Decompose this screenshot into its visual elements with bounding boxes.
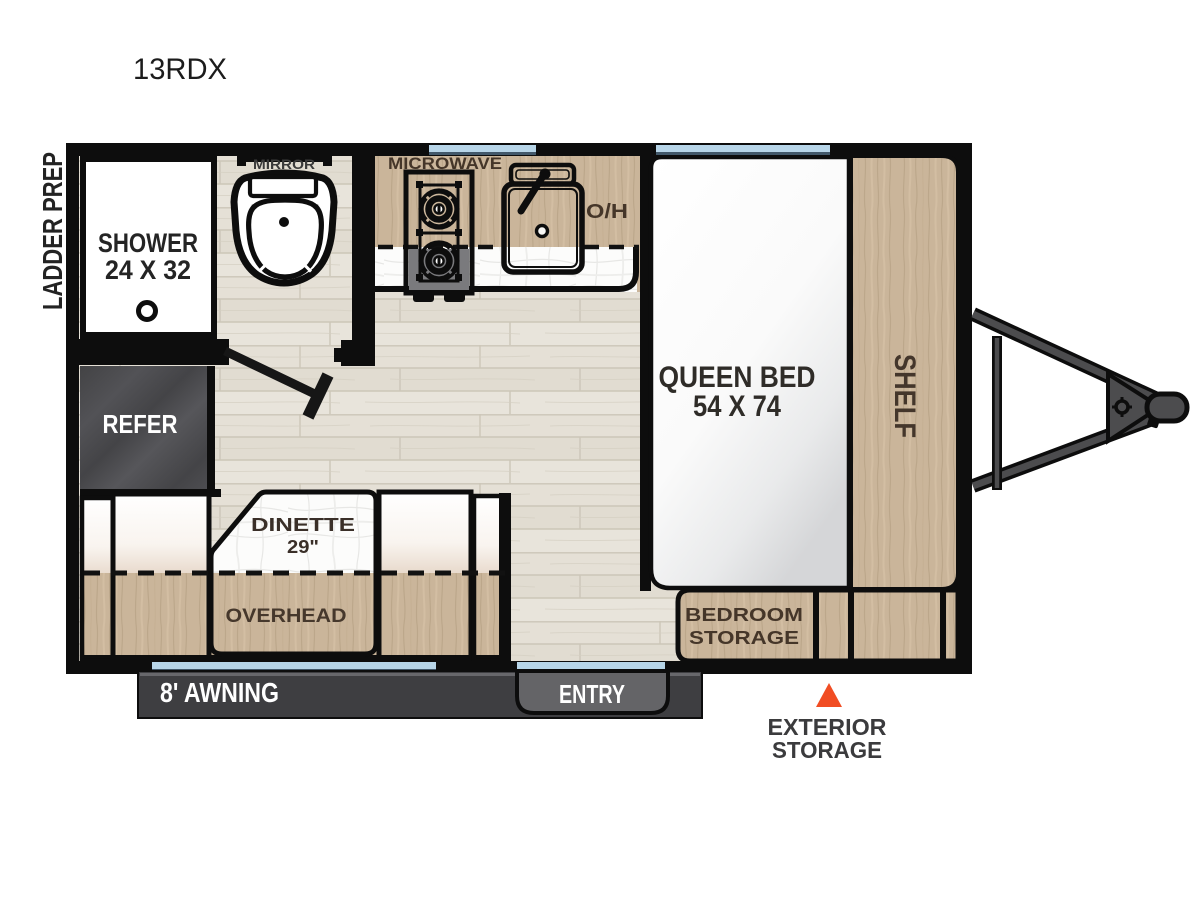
svg-text:ENTRY: ENTRY bbox=[559, 679, 625, 709]
svg-text:REFER: REFER bbox=[103, 409, 178, 439]
svg-text:24 X 32: 24 X 32 bbox=[105, 255, 191, 285]
svg-text:BEDROOM: BEDROOM bbox=[685, 604, 803, 625]
svg-text:8' AWNING: 8' AWNING bbox=[160, 677, 279, 708]
svg-text:OVERHEAD: OVERHEAD bbox=[226, 606, 347, 627]
svg-text:54 X 74: 54 X 74 bbox=[693, 390, 781, 423]
svg-text:SHELF: SHELF bbox=[888, 354, 921, 438]
svg-text:SHOWER: SHOWER bbox=[98, 228, 198, 258]
svg-text:LADDER PREP: LADDER PREP bbox=[37, 152, 68, 310]
svg-text:O/H: O/H bbox=[586, 201, 628, 223]
svg-text:13RDX: 13RDX bbox=[133, 53, 227, 86]
svg-text:29": 29" bbox=[287, 536, 319, 557]
svg-text:STORAGE: STORAGE bbox=[772, 737, 882, 763]
svg-text:STORAGE: STORAGE bbox=[689, 627, 799, 648]
svg-text:DINETTE: DINETTE bbox=[251, 514, 355, 535]
